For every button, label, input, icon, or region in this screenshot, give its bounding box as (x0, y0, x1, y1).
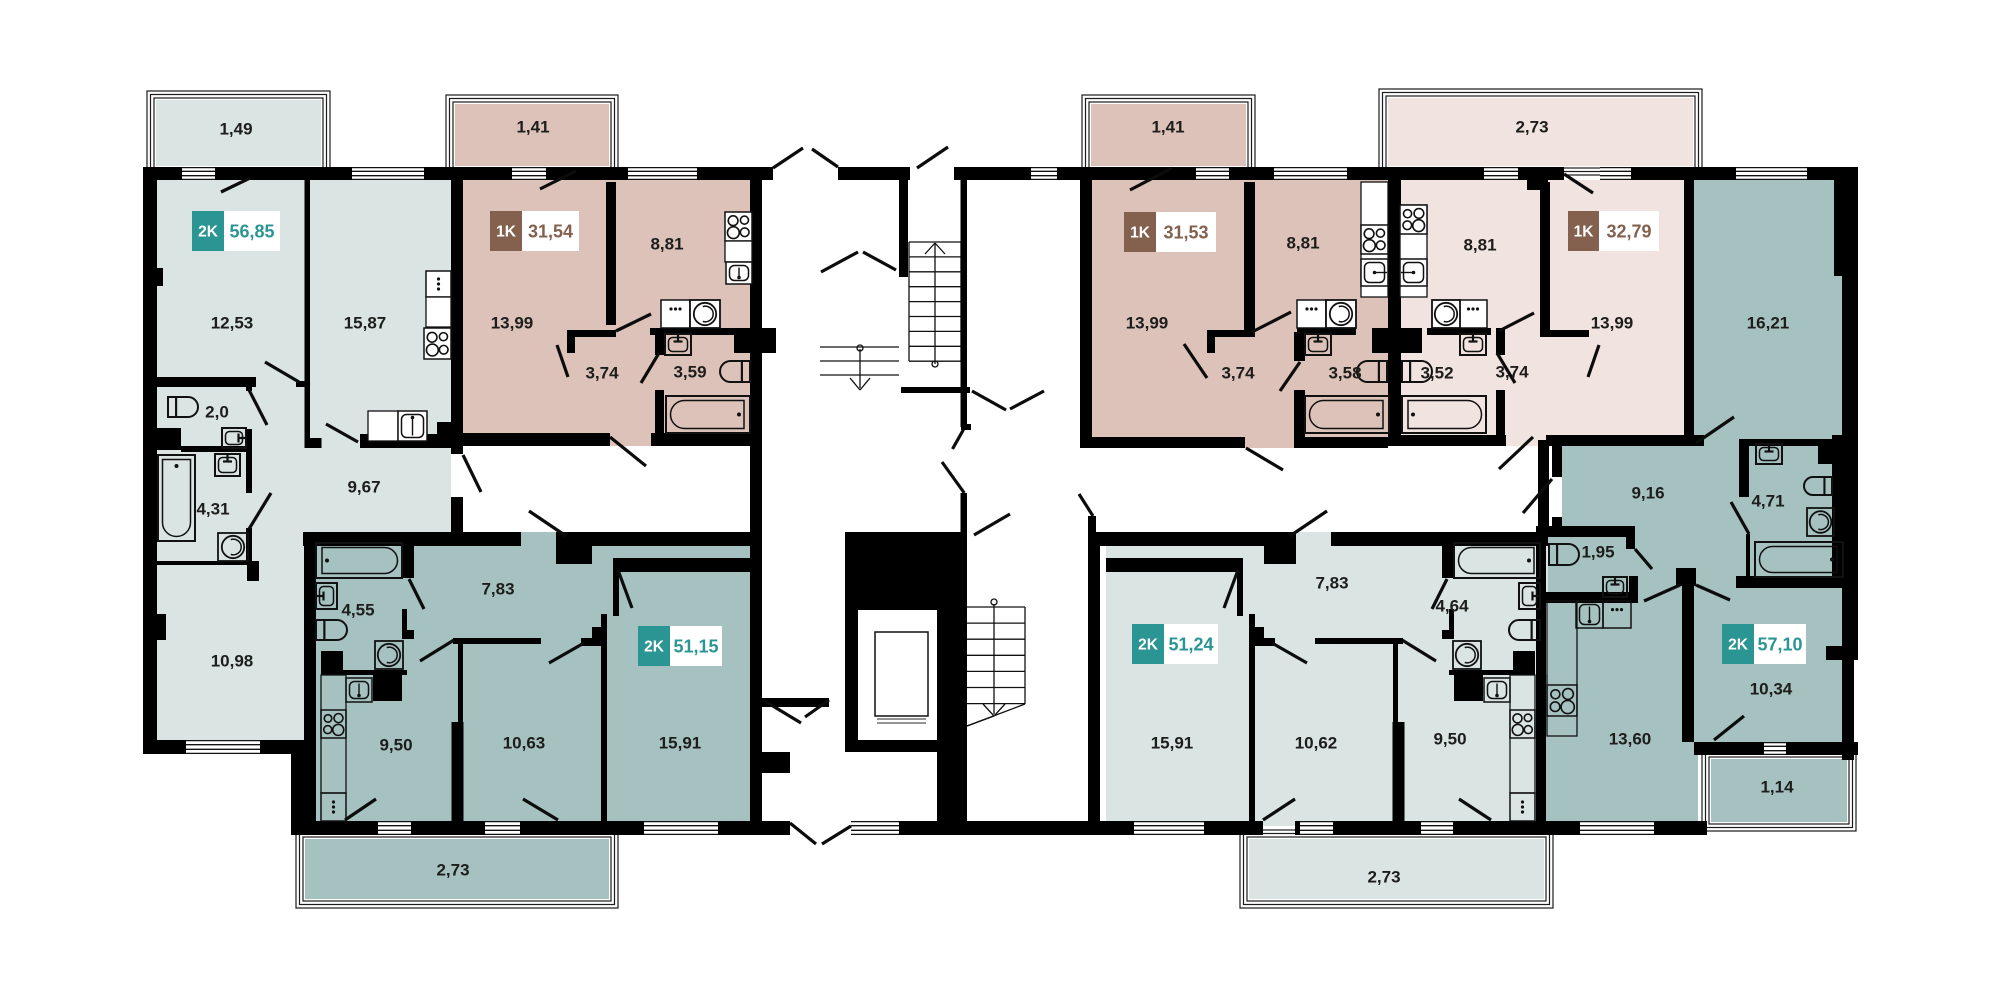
svg-text:2K: 2K (1138, 637, 1159, 654)
svg-text:1K: 1K (496, 224, 517, 241)
svg-text:3,74: 3,74 (585, 363, 619, 382)
svg-text:4,55: 4,55 (341, 600, 374, 619)
svg-text:3,74: 3,74 (1495, 362, 1529, 381)
svg-text:3,74: 3,74 (1221, 363, 1255, 382)
svg-text:9,50: 9,50 (379, 735, 412, 754)
svg-text:1K: 1K (1130, 225, 1151, 242)
svg-text:2K: 2K (1728, 637, 1749, 654)
svg-text:7,83: 7,83 (1315, 573, 1348, 592)
svg-text:9,67: 9,67 (347, 477, 380, 496)
svg-text:9,16: 9,16 (1631, 483, 1664, 502)
svg-text:4,71: 4,71 (1751, 491, 1784, 510)
svg-text:2,73: 2,73 (436, 860, 469, 879)
svg-text:10,62: 10,62 (1295, 733, 1338, 752)
svg-text:2,73: 2,73 (1367, 867, 1400, 886)
svg-text:3,59: 3,59 (673, 362, 706, 381)
svg-text:2K: 2K (644, 639, 665, 656)
svg-text:1,41: 1,41 (1151, 117, 1184, 136)
svg-text:1,49: 1,49 (219, 119, 252, 138)
svg-text:1K: 1K (1574, 224, 1595, 241)
svg-text:1,41: 1,41 (516, 117, 549, 136)
svg-text:13,99: 13,99 (1126, 313, 1169, 332)
svg-text:13,60: 13,60 (1609, 729, 1652, 748)
svg-text:15,87: 15,87 (344, 313, 387, 332)
svg-text:57,10: 57,10 (1757, 634, 1802, 654)
svg-text:2,0: 2,0 (205, 402, 229, 421)
svg-text:1,14: 1,14 (1760, 777, 1794, 796)
svg-text:51,24: 51,24 (1168, 634, 1213, 654)
svg-text:31,54: 31,54 (528, 221, 573, 241)
svg-text:13,99: 13,99 (491, 313, 534, 332)
svg-text:15,91: 15,91 (1151, 733, 1194, 752)
svg-text:16,21: 16,21 (1747, 313, 1790, 332)
svg-text:8,81: 8,81 (650, 234, 683, 253)
svg-text:10,98: 10,98 (211, 651, 254, 670)
svg-text:3,58: 3,58 (1328, 363, 1361, 382)
svg-text:2,73: 2,73 (1515, 117, 1548, 136)
svg-text:15,91: 15,91 (659, 733, 702, 752)
svg-text:10,63: 10,63 (503, 733, 546, 752)
svg-text:32,79: 32,79 (1606, 221, 1651, 241)
svg-text:8,81: 8,81 (1463, 235, 1496, 254)
svg-text:4,31: 4,31 (196, 499, 229, 518)
svg-text:9,50: 9,50 (1433, 729, 1466, 748)
svg-text:7,83: 7,83 (481, 579, 514, 598)
svg-text:51,15: 51,15 (673, 636, 718, 656)
svg-text:3,52: 3,52 (1420, 363, 1453, 382)
svg-text:56,85: 56,85 (229, 221, 274, 241)
svg-text:8,81: 8,81 (1286, 233, 1319, 252)
svg-text:1,95: 1,95 (1581, 542, 1614, 561)
svg-text:31,53: 31,53 (1163, 222, 1208, 242)
svg-text:12,53: 12,53 (211, 313, 254, 332)
svg-text:2K: 2K (198, 224, 219, 241)
svg-text:10,34: 10,34 (1750, 679, 1793, 698)
svg-text:13,99: 13,99 (1591, 313, 1634, 332)
svg-text:4,64: 4,64 (1435, 596, 1469, 615)
